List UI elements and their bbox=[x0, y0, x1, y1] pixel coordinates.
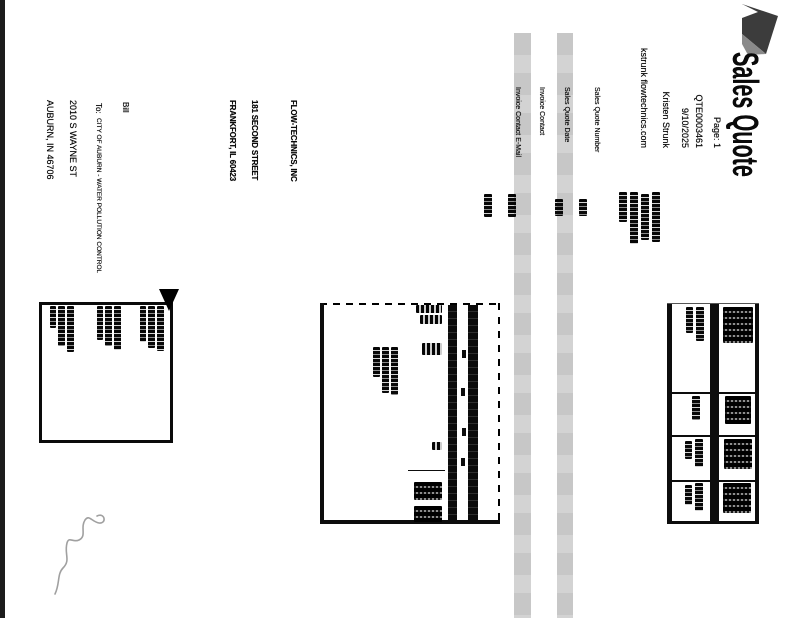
item-cell-divider bbox=[408, 470, 445, 471]
meta-contact-email: kstrunk flowtechnics.com bbox=[639, 0, 649, 148]
item-table-bottom-border bbox=[320, 303, 324, 524]
item-desc-line-smudge bbox=[373, 347, 380, 377]
item-qty-smudge bbox=[432, 442, 442, 450]
header-table-divider bbox=[667, 521, 759, 524]
header-cell-smudge bbox=[725, 396, 751, 424]
meta-quote-date: 9/10/2025 bbox=[680, 0, 690, 148]
header-table-top-border bbox=[755, 303, 759, 524]
comment-line-smudge bbox=[58, 306, 65, 346]
header-cell-smudge bbox=[723, 483, 751, 513]
item-amount-smudge bbox=[414, 506, 442, 522]
bill-to-prefix: Bill bbox=[121, 102, 130, 113]
header-table-divider bbox=[667, 392, 759, 394]
meta-quote-number: QTE0003461 bbox=[694, 0, 704, 148]
company-street: 181 SECOND STREET bbox=[250, 100, 259, 180]
meta-page-number: Page: 1 bbox=[712, 0, 722, 148]
comment-line-smudge bbox=[148, 306, 155, 348]
scanned-sales-quote-page: Sales Quote Page: 1 QTE0003461 9/10/2025… bbox=[0, 0, 800, 618]
comment-line-smudge bbox=[97, 306, 103, 340]
bill-to-label: To: bbox=[94, 103, 103, 114]
field-value-smudge bbox=[484, 194, 492, 217]
header-table-divider bbox=[667, 435, 759, 437]
header-table-divider bbox=[667, 303, 759, 304]
company-name: FLOW-TECHNICS, INC bbox=[289, 100, 298, 182]
value-cell-smudge bbox=[696, 307, 704, 341]
value-cell-smudge bbox=[685, 485, 692, 505]
meta-contact-name: Kristen Strunk bbox=[661, 0, 671, 148]
field-value-smudge bbox=[579, 199, 587, 216]
company-city: FRANKFORT, IL 60423 bbox=[228, 100, 237, 181]
value-cell-smudge bbox=[695, 439, 703, 467]
comment-line-smudge bbox=[157, 306, 164, 351]
item-price-smudge bbox=[414, 482, 442, 500]
header-text-remnant bbox=[462, 350, 466, 358]
value-cell-smudge bbox=[686, 307, 693, 333]
handwriting-smudge bbox=[652, 192, 660, 242]
comment-line-smudge bbox=[105, 306, 112, 346]
header-text-remnant bbox=[461, 458, 465, 466]
header-table-middle-rule bbox=[710, 303, 719, 524]
value-cell-smudge bbox=[692, 396, 700, 420]
header-cell-smudge bbox=[724, 439, 752, 469]
item-table-header-rule bbox=[448, 305, 457, 520]
bill-to-name: CITY OF AUBURN - WATER POLLUTION CONTROL bbox=[95, 118, 102, 273]
scan-edge-artifact bbox=[0, 0, 5, 618]
field-value-smudge bbox=[508, 194, 516, 217]
label-invoice-contact: Invoice Contact bbox=[538, 87, 545, 135]
label-sales-quote-date: Sales Quote Date bbox=[563, 87, 570, 142]
value-cell-smudge bbox=[695, 483, 703, 511]
comment-line-smudge bbox=[114, 306, 121, 350]
handwriting-smudge bbox=[619, 192, 627, 222]
bill-to-street: 2010 S WAYNE ST bbox=[68, 100, 78, 177]
handwriting-smudge bbox=[641, 194, 649, 240]
header-table-divider bbox=[667, 480, 759, 482]
header-text-remnant bbox=[461, 388, 465, 396]
comment-line-smudge bbox=[140, 306, 146, 342]
bill-to-city: AUBURN, IN 46706 bbox=[45, 100, 55, 180]
item-table-top-border bbox=[498, 303, 500, 524]
field-value-smudge bbox=[555, 199, 563, 216]
item-table-header-band bbox=[468, 305, 478, 520]
comment-line-smudge bbox=[67, 306, 74, 352]
company-logo-icon bbox=[740, 0, 780, 56]
item-desc-smudge bbox=[422, 343, 442, 355]
pencil-signature-scribble bbox=[52, 510, 107, 610]
item-table-right-border bbox=[320, 520, 500, 524]
comment-line-smudge bbox=[50, 306, 56, 328]
header-text-remnant bbox=[462, 428, 466, 436]
page-title: Sales Quote bbox=[724, 52, 766, 177]
item-number-smudge bbox=[416, 305, 442, 313]
handwriting-smudge bbox=[630, 192, 638, 244]
item-desc-line-smudge bbox=[391, 347, 398, 395]
item-desc-line-smudge bbox=[382, 347, 389, 393]
header-cell-smudge bbox=[723, 307, 753, 343]
header-table-bottom-border bbox=[667, 303, 672, 524]
value-cell-smudge bbox=[685, 441, 692, 459]
item-number-smudge bbox=[420, 315, 442, 324]
label-sales-quote-number: Sales Quote Number bbox=[593, 87, 600, 152]
label-invoice-contact-email: Invoice Contact E-Mail bbox=[514, 87, 521, 157]
